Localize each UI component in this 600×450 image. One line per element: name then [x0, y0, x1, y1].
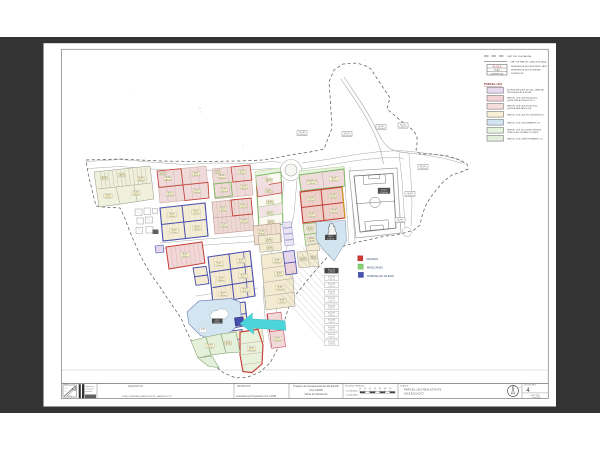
svg-text:790 m2: 790 m2	[215, 172, 221, 174]
svg-text:CAL CANDI: CAL CANDI	[309, 388, 323, 392]
svg-text:PL-02.05: PL-02.05	[328, 298, 335, 300]
svg-text:1.790 m2: 1.790 m2	[170, 232, 177, 234]
svg-text:1.150 m2: 1.150 m2	[239, 207, 246, 209]
svg-text:i urbanisme: i urbanisme	[86, 388, 94, 390]
svg-text:1.580 m2: 1.580 m2	[275, 275, 282, 277]
svg-text:PL-02.08: PL-02.08	[328, 320, 335, 322]
svg-text:1.600 m2: 1.600 m2	[276, 289, 283, 291]
svg-text:LIMIT DEL PLA PARCIAL: LIMIT DEL PLA PARCIAL	[507, 55, 533, 58]
svg-text:22.40 m2: 22.40 m2	[298, 134, 306, 136]
svg-text:1.234 m2: 1.234 m2	[328, 293, 335, 295]
svg-text:ZV-2: ZV-2	[215, 320, 219, 322]
svg-text:1.255 m2: 1.255 m2	[100, 179, 107, 181]
svg-text:PARCEL·LES QUE ES ADJUDI-: PARCEL·LES QUE ES ADJUDI-	[507, 96, 538, 99]
svg-text:2.100 m2: 2.100 m2	[330, 180, 337, 182]
svg-text:1.224 m2: 1.224 m2	[328, 286, 335, 288]
svg-text:1:2.000 (A1): 1:2.000 (A1)	[346, 390, 358, 393]
svg-text:Nº DE PLANOL: Nº DE PLANOL	[524, 383, 537, 386]
svg-text:6.430 m2: 6.430 m2	[399, 127, 407, 129]
svg-text:LIMIT DE PARCEL·LA ADJUDICADA: LIMIT DE PARCEL·LA ADJUDICADA	[510, 61, 547, 64]
svg-text:ADJUDICACIÓ: ADJUDICACIÓ	[404, 391, 424, 396]
svg-text:1.274 m2: 1.274 m2	[328, 322, 335, 324]
svg-text:JUDICADES A LA JUNTA: JUDICADES A LA JUNTA	[507, 91, 532, 94]
svg-text:40: 40	[369, 388, 371, 390]
svg-text:20: 20	[364, 388, 366, 390]
svg-text:1.740 m2: 1.740 m2	[206, 347, 213, 349]
svg-text:1.280 m2: 1.280 m2	[238, 173, 245, 175]
svg-text:1.610 m2: 1.610 m2	[166, 195, 173, 197]
svg-text:Projecte de Compensació del Pl: Projecte de Compensació del Pla Parcial	[293, 385, 339, 388]
svg-text:870 m2: 870 m2	[160, 174, 166, 176]
svg-text:00: 00	[359, 388, 361, 390]
svg-text:SUPERF. M2: SUPERF. M2	[491, 73, 505, 75]
svg-text:Olesa de Montserrat: Olesa de Montserrat	[305, 393, 328, 396]
svg-text:1.210 m2: 1.210 m2	[329, 197, 336, 199]
svg-text:1.750 m2: 1.750 m2	[192, 213, 199, 215]
svg-text:1.264 m2: 1.264 m2	[328, 315, 335, 317]
svg-text:Associació de Propietaris CAL: Associació de Propietaris CAL CANDI	[236, 395, 277, 398]
svg-text:1.610 m2: 1.610 m2	[273, 262, 280, 264]
svg-text:PL-XX.X: PL-XX.X	[493, 66, 502, 68]
svg-text:1.294 m2: 1.294 m2	[328, 336, 335, 338]
svg-text:PARCELAS OLESA: PARCELAS OLESA	[367, 274, 394, 278]
svg-text:80: 80	[379, 388, 381, 390]
svg-text:MASCANDI: MASCANDI	[367, 266, 383, 270]
svg-text:1.130 m2: 1.130 m2	[307, 200, 314, 202]
svg-text:1.980 m2: 1.980 m2	[137, 180, 144, 182]
svg-text:PL-02.10: PL-02.10	[328, 334, 335, 336]
svg-text:PL-02.11: PL-02.11	[328, 341, 335, 343]
svg-text:PARCEL·LES QUE ES ADJUDI-: PARCEL·LES QUE ES ADJUDI-	[507, 104, 538, 107]
svg-text:1.020 m2: 1.020 m2	[266, 203, 273, 205]
svg-text:1.440 m2: 1.440 m2	[193, 192, 200, 194]
svg-text:950 m2: 950 m2	[259, 233, 265, 235]
svg-text:1.350 m2: 1.350 m2	[220, 191, 227, 193]
svg-text:1.820 m2: 1.820 m2	[193, 229, 200, 231]
svg-text:DIGNUS: DIGNUS	[367, 257, 379, 261]
svg-text:2.140 m2: 2.140 m2	[248, 350, 255, 352]
svg-text:2.140 m2: 2.140 m2	[132, 194, 139, 196]
svg-text:1.244 m2: 1.244 m2	[328, 300, 335, 302]
svg-text:2.610 m2: 2.610 m2	[104, 197, 111, 199]
svg-text:1.204 m2: 1.204 m2	[328, 272, 335, 274]
svg-text:5.230 m2: 5.230 m2	[327, 239, 334, 241]
svg-text:PARCEL·LES QUE ES CEDEIXEN m2: PARCEL·LES QUE ES CEDEIXEN m2	[507, 114, 545, 117]
svg-text:4: 4	[526, 387, 530, 394]
svg-text:980 m2: 980 m2	[266, 181, 272, 183]
svg-text:PL-02.03: PL-02.03	[328, 284, 335, 286]
svg-text:1.2104 m2: 1.2104 m2	[328, 344, 336, 346]
svg-text:1.930 m2: 1.930 m2	[217, 280, 224, 282]
svg-text:SUPERFICIE: SUPERFICIE	[511, 73, 524, 75]
svg-text:1.560 m2: 1.560 m2	[192, 175, 199, 177]
svg-text:1.480 m2: 1.480 m2	[164, 179, 171, 181]
svg-text:1.850 m2: 1.850 m2	[239, 277, 246, 279]
svg-text:1.910 m2: 1.910 m2	[215, 265, 222, 267]
svg-text:9.610 m2: 9.610 m2	[377, 128, 385, 130]
svg-text:760 m2: 760 m2	[307, 229, 313, 231]
svg-text:990 m2: 990 m2	[267, 214, 273, 216]
svg-text:3.120 m2: 3.120 m2	[396, 221, 404, 223]
svg-text:4.120 m2: 4.120 m2	[214, 322, 221, 324]
svg-text:1.310 m2: 1.310 m2	[218, 177, 225, 179]
svg-text:1.890 m2: 1.890 m2	[219, 295, 226, 297]
svg-text:1.260 m2: 1.260 m2	[220, 226, 227, 228]
svg-text:18.520 m2: 18.520 m2	[343, 135, 352, 137]
svg-text:ALTRES FINQUES DE CAL CANDI AD: ALTRES FINQUES DE CAL CANDI AD-	[507, 88, 545, 91]
svg-text:740 m2: 740 m2	[309, 240, 315, 242]
svg-text:PL-02.04: PL-02.04	[328, 291, 335, 293]
svg-text:120: 120	[389, 388, 392, 390]
svg-text:1.430 m2: 1.430 m2	[299, 260, 306, 262]
svg-text:PL-02.06: PL-02.06	[328, 305, 335, 307]
svg-text:ARQUITECTE: ARQUITECTE	[128, 385, 143, 388]
svg-text:PARCEL·LES D'APROFITAMENT m2: PARCEL·LES D'APROFITAMENT m2	[507, 138, 544, 141]
svg-text:PL-02.01: PL-02.01	[328, 269, 335, 271]
svg-text:7.845 m2: 7.845 m2	[419, 168, 427, 170]
svg-text:1.815 m2: 1.815 m2	[168, 216, 175, 218]
svg-text:60: 60	[374, 388, 376, 390]
svg-text:1.190 m2: 1.190 m2	[330, 212, 337, 214]
svg-text:1.214 m2: 1.214 m2	[328, 279, 335, 281]
svg-text:930 m2: 930 m2	[266, 241, 272, 243]
svg-text:1.284 m2: 1.284 m2	[328, 329, 335, 331]
svg-text:1.270 m2: 1.270 m2	[240, 222, 247, 224]
svg-text:1.860 m2: 1.860 m2	[241, 291, 248, 293]
svg-text:910 m2: 910 m2	[267, 249, 273, 251]
svg-text:1.620 m2: 1.620 m2	[224, 344, 231, 346]
svg-text:PUBLIQUES I ESPAIS LLIURES: PUBLIQUES I ESPAIS LLIURES	[507, 131, 539, 134]
svg-text:3.420 m2: 3.420 m2	[181, 256, 188, 258]
svg-text:1.254 m2: 1.254 m2	[328, 308, 335, 310]
svg-text:1.320 m2: 1.320 m2	[219, 210, 226, 212]
svg-text:REFERENCIA DE FINCA RESULTANT: REFERENCIA DE FINCA RESULTANT	[511, 65, 548, 68]
svg-text:100: 100	[384, 388, 387, 390]
svg-text:1.300 m2: 1.300 m2	[274, 340, 281, 342]
svg-text:12.400 m2: 12.400 m2	[380, 192, 388, 194]
svg-text:1.330 m2: 1.330 m2	[240, 188, 247, 190]
svg-text:REFERENCIA DE PROPIETARI: REFERENCIA DE PROPIETARI	[511, 69, 541, 72]
svg-text:PL-02.07: PL-02.07	[328, 313, 335, 315]
svg-text:P-24: P-24	[201, 329, 205, 331]
svg-text:1:4.000 (A3): 1:4.000 (A3)	[346, 393, 358, 396]
svg-text:PL-02.09: PL-02.09	[328, 327, 335, 329]
svg-text:4.210 m2: 4.210 m2	[406, 195, 414, 197]
svg-text:PL-02.02: PL-02.02	[328, 277, 335, 279]
svg-text:2.455 m2: 2.455 m2	[118, 176, 125, 178]
svg-text:P-XX: P-XX	[494, 70, 500, 72]
svg-text:QUEN A MASCANDI S.A.: QUEN A MASCANDI S.A.	[507, 107, 532, 110]
svg-text:QUEN PER A DIGNUS SCCL: QUEN PER A DIGNUS SCCL	[507, 99, 536, 102]
svg-text:1.570 m2: 1.570 m2	[278, 302, 285, 304]
svg-text:JORDI GONZALEZ ARQUITECTE -: JORDI GONZALEZ ARQUITECTE - ARQUITECTO	[122, 395, 172, 398]
svg-text:PARCEL·LES DE ZONES VERDES: PARCEL·LES DE ZONES VERDES	[507, 128, 542, 131]
svg-text:PROMOTOR: PROMOTOR	[237, 386, 251, 388]
svg-text:1.870 m2: 1.870 m2	[237, 262, 244, 264]
svg-text:*: *	[520, 386, 521, 390]
svg-text:Juny 2005: Juny 2005	[532, 397, 540, 399]
svg-text:PARCEL·LES D'EQUIPAMENT m2: PARCEL·LES D'EQUIPAMENT m2	[507, 122, 541, 125]
svg-text:2.350 m2: 2.350 m2	[308, 183, 315, 185]
svg-text:1.050 m2: 1.050 m2	[265, 192, 272, 194]
svg-text:ESCALA GRAFICA: ESCALA GRAFICA	[345, 385, 364, 388]
svg-text:PARCEL·LES: PARCEL·LES	[484, 82, 502, 86]
svg-text:1.100 m2: 1.100 m2	[308, 216, 315, 218]
